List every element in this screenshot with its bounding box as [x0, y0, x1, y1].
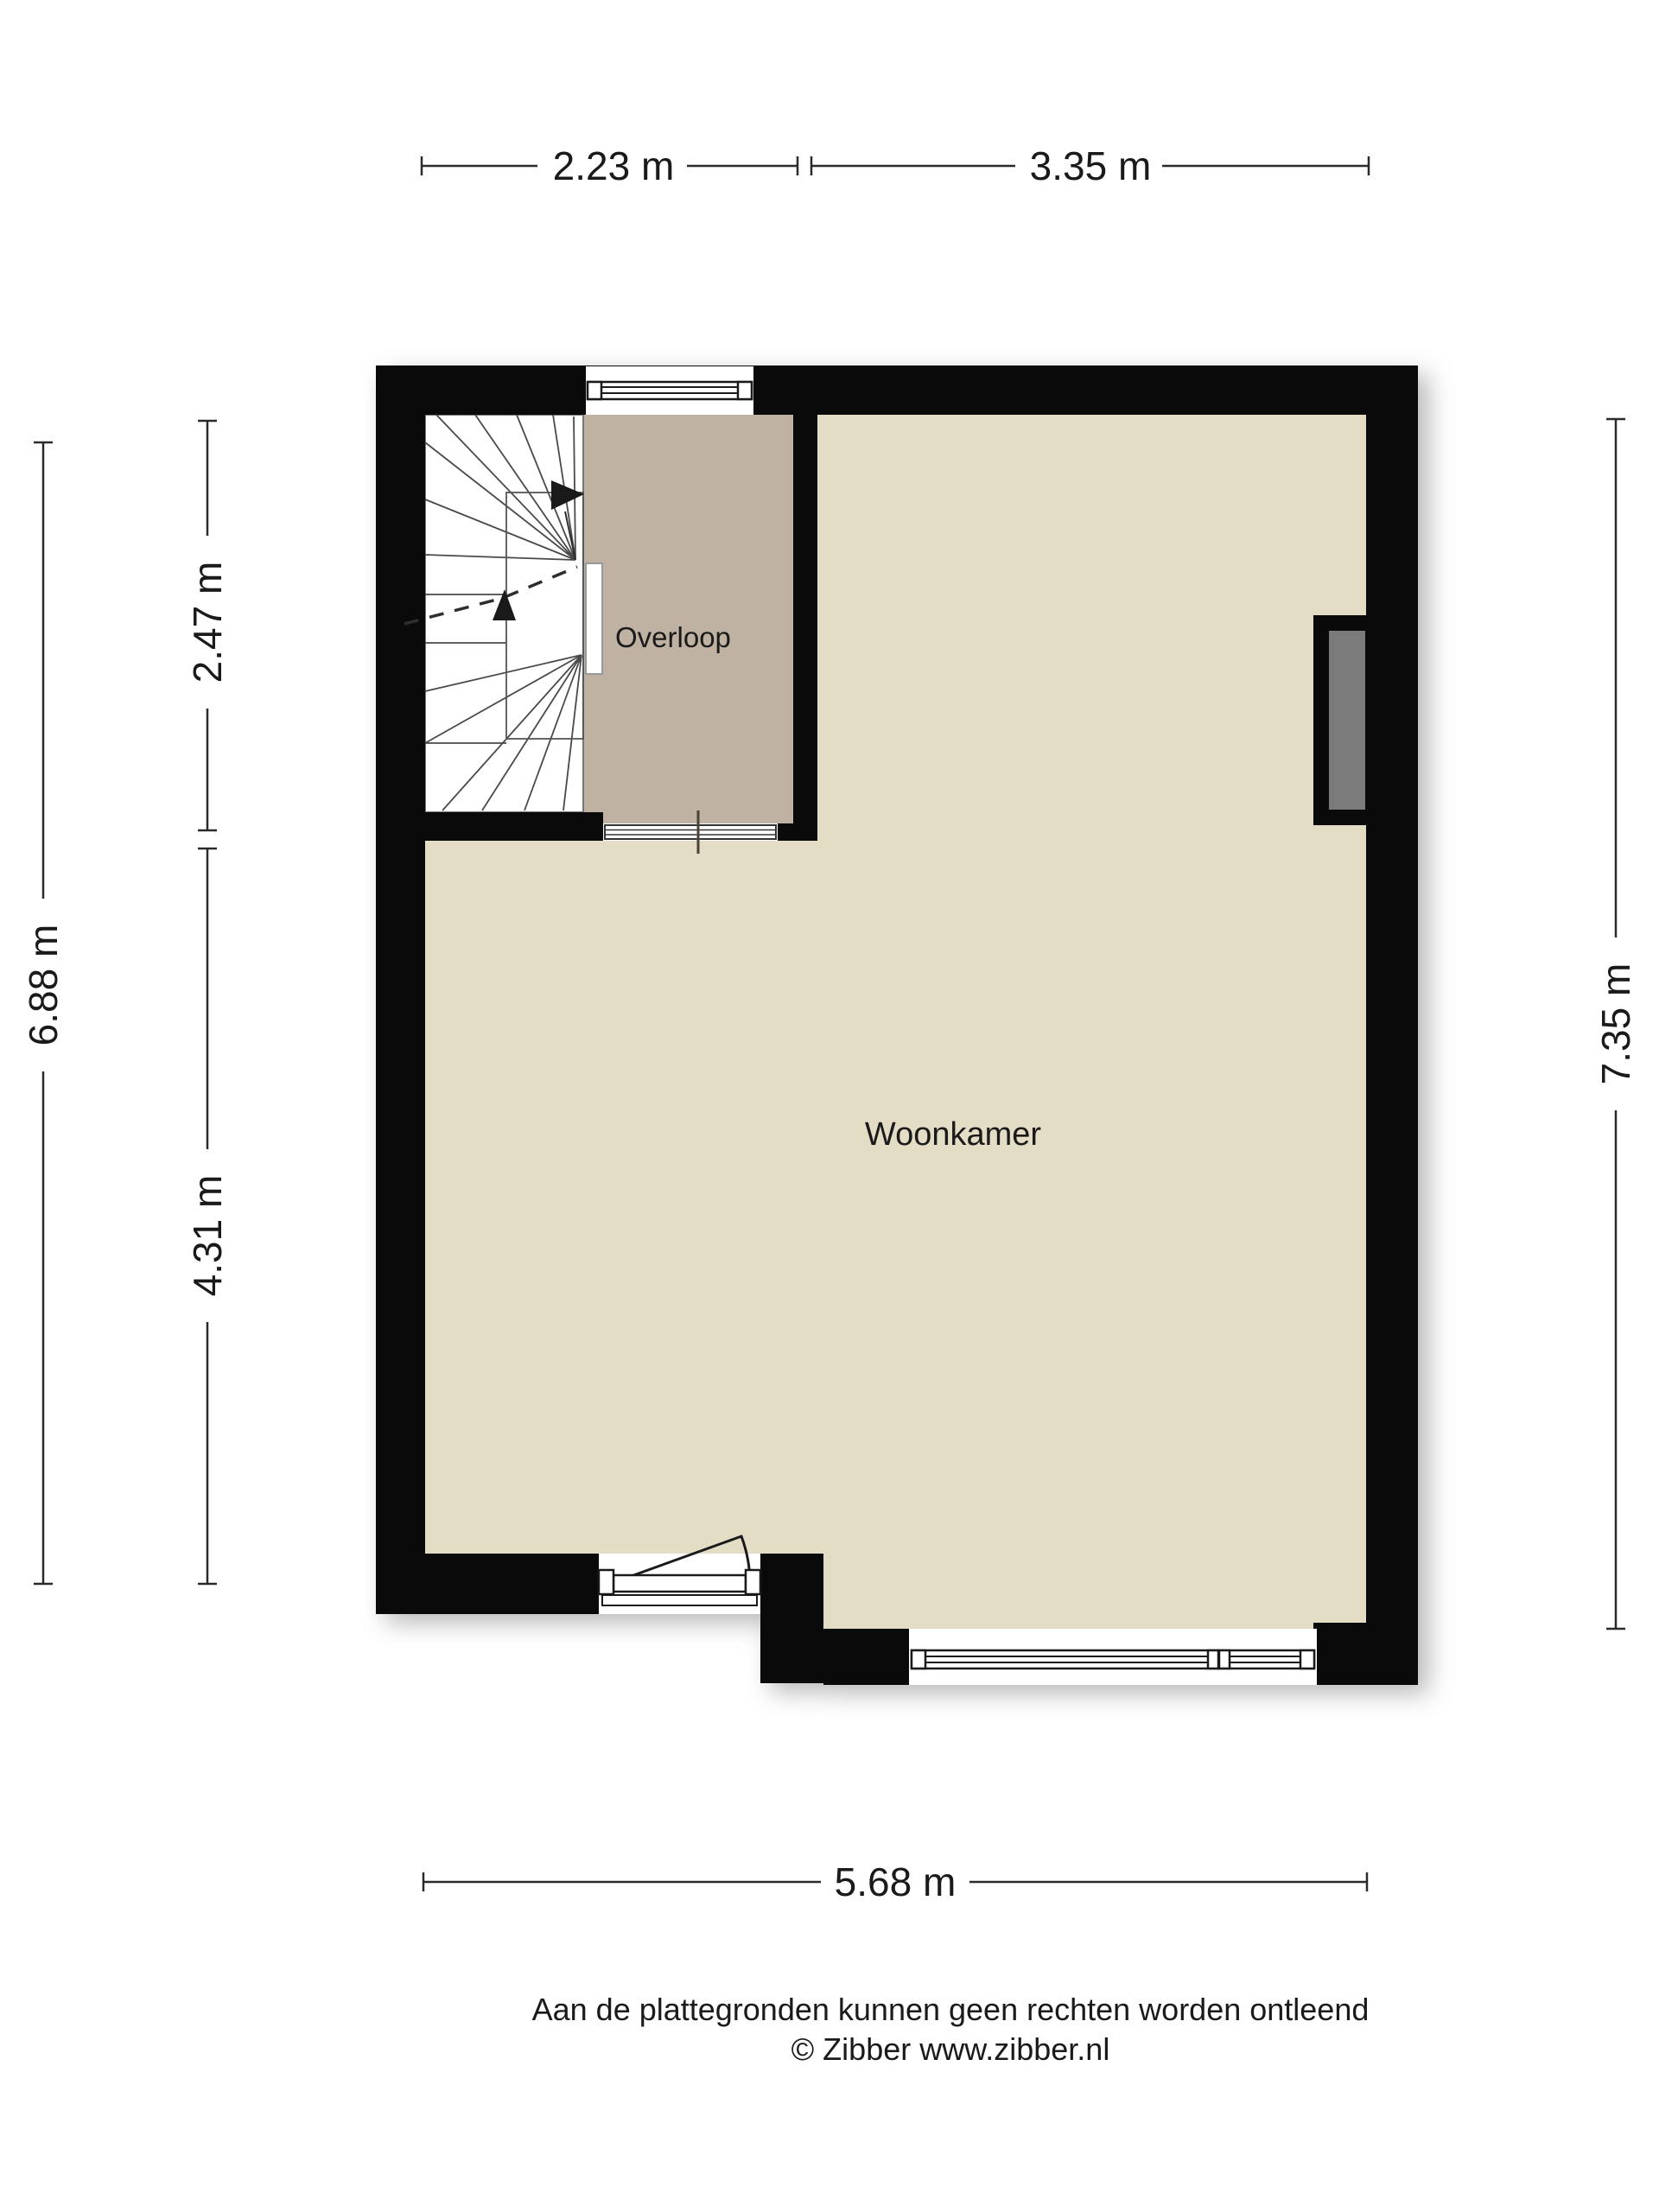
- window-top-cap-right: [738, 382, 752, 399]
- room-label-landing: Overloop: [615, 621, 731, 653]
- room-label-living: Woonkamer: [865, 1116, 1042, 1153]
- dim-label-top-left: 2.23 m: [553, 143, 675, 188]
- dim-label-bottom: 5.68 m: [835, 1859, 957, 1904]
- floorplan-page: 2.23 m 3.35 m 5.68 m 6.88 m 2.47 m 4.31 …: [0, 0, 1659, 2212]
- dim-label-left-lower: 4.31 m: [185, 1175, 230, 1297]
- wall-landing-divider: [793, 415, 817, 841]
- door-threshold: [602, 1595, 757, 1605]
- floor-plan: [376, 365, 1418, 1685]
- niche-inset: [1329, 631, 1365, 810]
- dim-label-top-right: 3.35 m: [1030, 143, 1152, 188]
- floorplan-svg: 2.23 m 3.35 m 5.68 m 6.88 m 2.47 m 4.31 …: [0, 0, 1659, 2212]
- window-bottom-cap-left: [912, 1650, 925, 1669]
- window-bottom-mullion-right: [1219, 1650, 1230, 1669]
- dim-label-right: 7.35 m: [1593, 963, 1638, 1085]
- wall-right: [1366, 365, 1418, 1685]
- door-hinge-left: [599, 1570, 613, 1594]
- wall-landing-door-jamb: [778, 823, 793, 841]
- stair-door-leaf: [586, 563, 602, 674]
- window-bottom-mullion-left: [1208, 1650, 1218, 1669]
- wall-corner-lip: [1313, 1623, 1366, 1635]
- door-hinge-right: [746, 1570, 760, 1594]
- dim-label-left-upper: 2.47 m: [185, 562, 230, 683]
- wall-stair-bottom: [425, 812, 603, 841]
- landing-floor: [583, 415, 793, 823]
- wall-left: [376, 365, 425, 1614]
- window-bottom: [909, 1629, 1317, 1685]
- footer-disclaimer: Aan de plattegronden kunnen geen rechten…: [532, 1992, 1370, 2027]
- wall-top: [376, 365, 1418, 415]
- door-leaf: [613, 1575, 746, 1592]
- window-bottom-cap-right: [1300, 1650, 1314, 1669]
- window-top-cap-left: [588, 382, 601, 399]
- wall-step-block: [760, 1554, 823, 1683]
- dim-label-left-outer: 6.88 m: [21, 925, 66, 1046]
- window-top: [586, 366, 753, 415]
- footer-credit: © Zibber www.zibber.nl: [791, 2031, 1110, 2067]
